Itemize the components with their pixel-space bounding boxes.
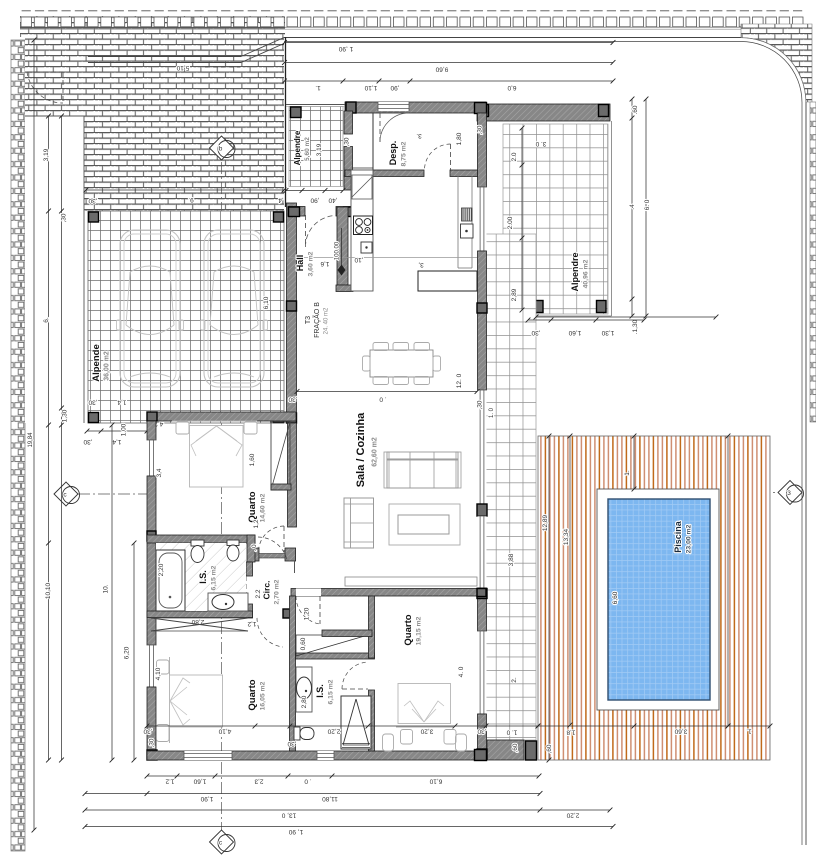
svg-text:2,89: 2,89 bbox=[511, 288, 518, 301]
svg-text:24. 40 m2: 24. 40 m2 bbox=[324, 307, 330, 334]
svg-text:,40: ,40 bbox=[328, 197, 337, 204]
svg-text:,30: ,30 bbox=[149, 738, 156, 747]
svg-text:14,60 m2: 14,60 m2 bbox=[260, 493, 267, 522]
svg-text:1,80: 1,80 bbox=[456, 132, 463, 145]
svg-text:.60: .60 bbox=[632, 105, 639, 114]
svg-text:3: 3 bbox=[787, 490, 791, 497]
svg-text:13,34: 13,34 bbox=[563, 528, 570, 545]
svg-text:2,70 m2: 2,70 m2 bbox=[274, 579, 281, 604]
svg-text:6,20: 6,20 bbox=[124, 646, 131, 659]
svg-text:1,60: 1,60 bbox=[193, 778, 206, 785]
svg-text:1.: 1. bbox=[746, 728, 752, 735]
svg-text:5,60 m2: 5,60 m2 bbox=[304, 137, 311, 161]
svg-text:2,20: 2,20 bbox=[327, 728, 340, 735]
svg-text:1,30: 1,30 bbox=[601, 329, 614, 336]
svg-text:62,60 m2: 62,60 m2 bbox=[372, 437, 379, 467]
svg-text:Quarto: Quarto bbox=[247, 491, 258, 522]
svg-text:,30: ,30 bbox=[61, 213, 68, 222]
svg-text:1. 0: 1. 0 bbox=[489, 407, 495, 418]
svg-text:Hall: Hall bbox=[295, 255, 305, 272]
svg-text:3,20: 3,20 bbox=[420, 728, 433, 735]
svg-text:1. 0: 1. 0 bbox=[506, 729, 517, 736]
svg-text:6,10: 6,10 bbox=[429, 778, 442, 785]
svg-text:1,60: 1,60 bbox=[568, 329, 581, 336]
svg-text:3,19: 3,19 bbox=[316, 143, 323, 156]
svg-text:.1,30: .1,30 bbox=[632, 319, 639, 334]
svg-text:,90: ,90 bbox=[390, 84, 399, 91]
svg-text:,4: ,4 bbox=[278, 197, 284, 204]
svg-text:6,15 m2: 6,15 m2 bbox=[211, 565, 218, 590]
svg-text:5,10: 5,10 bbox=[176, 64, 189, 71]
svg-text:,30: ,30 bbox=[344, 137, 351, 146]
svg-text:0,60: 0,60 bbox=[300, 637, 307, 650]
svg-text:,30: ,30 bbox=[143, 728, 152, 735]
svg-text:1,6: 1,6 bbox=[320, 260, 329, 267]
svg-text:10,10: 10,10 bbox=[45, 582, 52, 599]
svg-text:,30: ,30 bbox=[88, 197, 97, 204]
svg-text:12,89: 12,89 bbox=[542, 514, 549, 531]
svg-text:36,00 m2: 36,00 m2 bbox=[104, 351, 111, 381]
svg-text:3,60 m2: 3,60 m2 bbox=[308, 251, 315, 276]
svg-text:Alpendre: Alpendre bbox=[570, 252, 580, 291]
svg-text:6.: 6. bbox=[43, 317, 50, 323]
svg-text:9.: 9. bbox=[188, 196, 194, 203]
svg-text:3,: 3, bbox=[418, 261, 424, 268]
svg-text:2.: 2. bbox=[511, 677, 518, 683]
svg-text:,30: ,30 bbox=[288, 396, 297, 403]
svg-text:6,15 m2: 6,15 m2 bbox=[328, 679, 335, 704]
svg-text:11,80: 11,80 bbox=[322, 795, 338, 802]
svg-text:12. 0: 12. 0 bbox=[456, 373, 463, 388]
svg-text:6,0: 6,0 bbox=[507, 84, 516, 91]
svg-text:,30: ,30 bbox=[531, 329, 540, 336]
svg-text:2,20: 2,20 bbox=[566, 812, 579, 819]
svg-text:19,84: 19,84 bbox=[28, 432, 34, 448]
svg-text:,30: ,30 bbox=[287, 740, 296, 747]
svg-text:1,90: 1,90 bbox=[200, 795, 213, 802]
svg-text:23,00 m2: 23,00 m2 bbox=[686, 524, 693, 553]
svg-text:2,3: 2,3 bbox=[254, 778, 263, 785]
svg-text:6. 0: 6. 0 bbox=[644, 199, 651, 210]
svg-text:2,20: 2,20 bbox=[158, 563, 165, 576]
svg-text:2.00: 2.00 bbox=[507, 216, 514, 229]
svg-text:T3: T3 bbox=[305, 316, 312, 324]
svg-text:Alpende: Alpende bbox=[91, 344, 102, 381]
svg-text:FRAÇÃO B: FRAÇÃO B bbox=[312, 302, 321, 338]
svg-text:. 0: . 0 bbox=[379, 396, 387, 403]
svg-text:,90: ,90 bbox=[310, 197, 319, 204]
svg-text:I.S.: I.S. bbox=[315, 684, 325, 698]
svg-text:1 ,90: 1 ,90 bbox=[338, 45, 353, 52]
svg-text:19,15 m2: 19,15 m2 bbox=[416, 616, 423, 645]
svg-text:6,10: 6,10 bbox=[263, 296, 270, 309]
svg-text:1,60: 1,60 bbox=[249, 453, 256, 466]
svg-text:Sala / Cozinha: Sala / Cozinha bbox=[355, 412, 367, 487]
svg-text:1,20: 1,20 bbox=[304, 607, 311, 620]
svg-text:1.2: 1.2 bbox=[165, 778, 174, 785]
svg-text:,60: ,60 bbox=[546, 744, 553, 753]
svg-text:1.: 1. bbox=[315, 84, 321, 91]
svg-text:Quarto: Quarto bbox=[247, 679, 258, 710]
svg-text:,30: ,30 bbox=[477, 400, 484, 409]
svg-text:2.0: 2.0 bbox=[511, 152, 518, 161]
svg-text:3,60: 3,60 bbox=[674, 728, 687, 735]
svg-text:1,2: 1,2 bbox=[247, 620, 256, 627]
svg-text:,10: ,10 bbox=[354, 256, 363, 263]
svg-text:4,10: 4,10 bbox=[218, 728, 231, 735]
svg-text:3,4: 3,4 bbox=[156, 468, 163, 477]
svg-text:6,60: 6,60 bbox=[612, 591, 619, 604]
svg-text:1.: 1. bbox=[624, 470, 631, 476]
svg-text:40,96 m2: 40,96 m2 bbox=[583, 259, 590, 288]
svg-text:Desp.: Desp. bbox=[388, 141, 398, 166]
svg-text:4. 0: 4. 0 bbox=[458, 666, 465, 677]
svg-text:10.: 10. bbox=[103, 584, 110, 593]
svg-text:Circ.: Circ. bbox=[262, 581, 272, 600]
svg-text:4,10: 4,10 bbox=[155, 667, 162, 680]
svg-text:1,4: 1,4 bbox=[112, 438, 121, 445]
svg-text:1,8: 1,8 bbox=[566, 729, 575, 736]
svg-text:9,60: 9,60 bbox=[435, 66, 448, 73]
svg-text:I.S.: I.S. bbox=[198, 570, 208, 584]
svg-text:Quarto: Quarto bbox=[403, 614, 414, 645]
svg-text:b: b bbox=[219, 146, 223, 153]
svg-text:3,88: 3,88 bbox=[508, 553, 515, 566]
svg-text:3.: 3. bbox=[416, 132, 422, 139]
svg-text:,30: ,30 bbox=[83, 438, 92, 445]
svg-text:1,00: 1,00 bbox=[121, 423, 128, 436]
svg-text:100.00: 100.00 bbox=[335, 241, 341, 260]
svg-text:1,4: 1,4 bbox=[117, 399, 126, 406]
svg-text:8,75 m2: 8,75 m2 bbox=[401, 141, 408, 166]
svg-text:2,80: 2,80 bbox=[301, 695, 308, 708]
svg-text:3,19: 3,19 bbox=[43, 148, 50, 161]
svg-text:13, 0: 13, 0 bbox=[281, 812, 296, 819]
svg-text:Alpendre: Alpendre bbox=[293, 130, 302, 165]
svg-text:,60: ,60 bbox=[512, 743, 519, 752]
svg-text:16,05 m2: 16,05 m2 bbox=[260, 681, 267, 710]
svg-text:,30: ,30 bbox=[477, 125, 484, 134]
svg-text:3. 0: 3. 0 bbox=[535, 140, 546, 147]
svg-text:,30: ,30 bbox=[477, 728, 486, 735]
svg-text:1,2: 1,2 bbox=[253, 519, 260, 528]
svg-text:,30: ,30 bbox=[88, 399, 97, 406]
svg-text:. 0: . 0 bbox=[304, 778, 312, 785]
svg-text:.4: .4 bbox=[629, 204, 636, 210]
svg-text:1,30: 1,30 bbox=[62, 409, 69, 422]
svg-text:. 0: . 0 bbox=[251, 544, 258, 552]
svg-text:1,10: 1,10 bbox=[364, 84, 377, 91]
svg-text:Piscina: Piscina bbox=[673, 520, 683, 553]
svg-text:1, 90: 1, 90 bbox=[288, 828, 303, 835]
